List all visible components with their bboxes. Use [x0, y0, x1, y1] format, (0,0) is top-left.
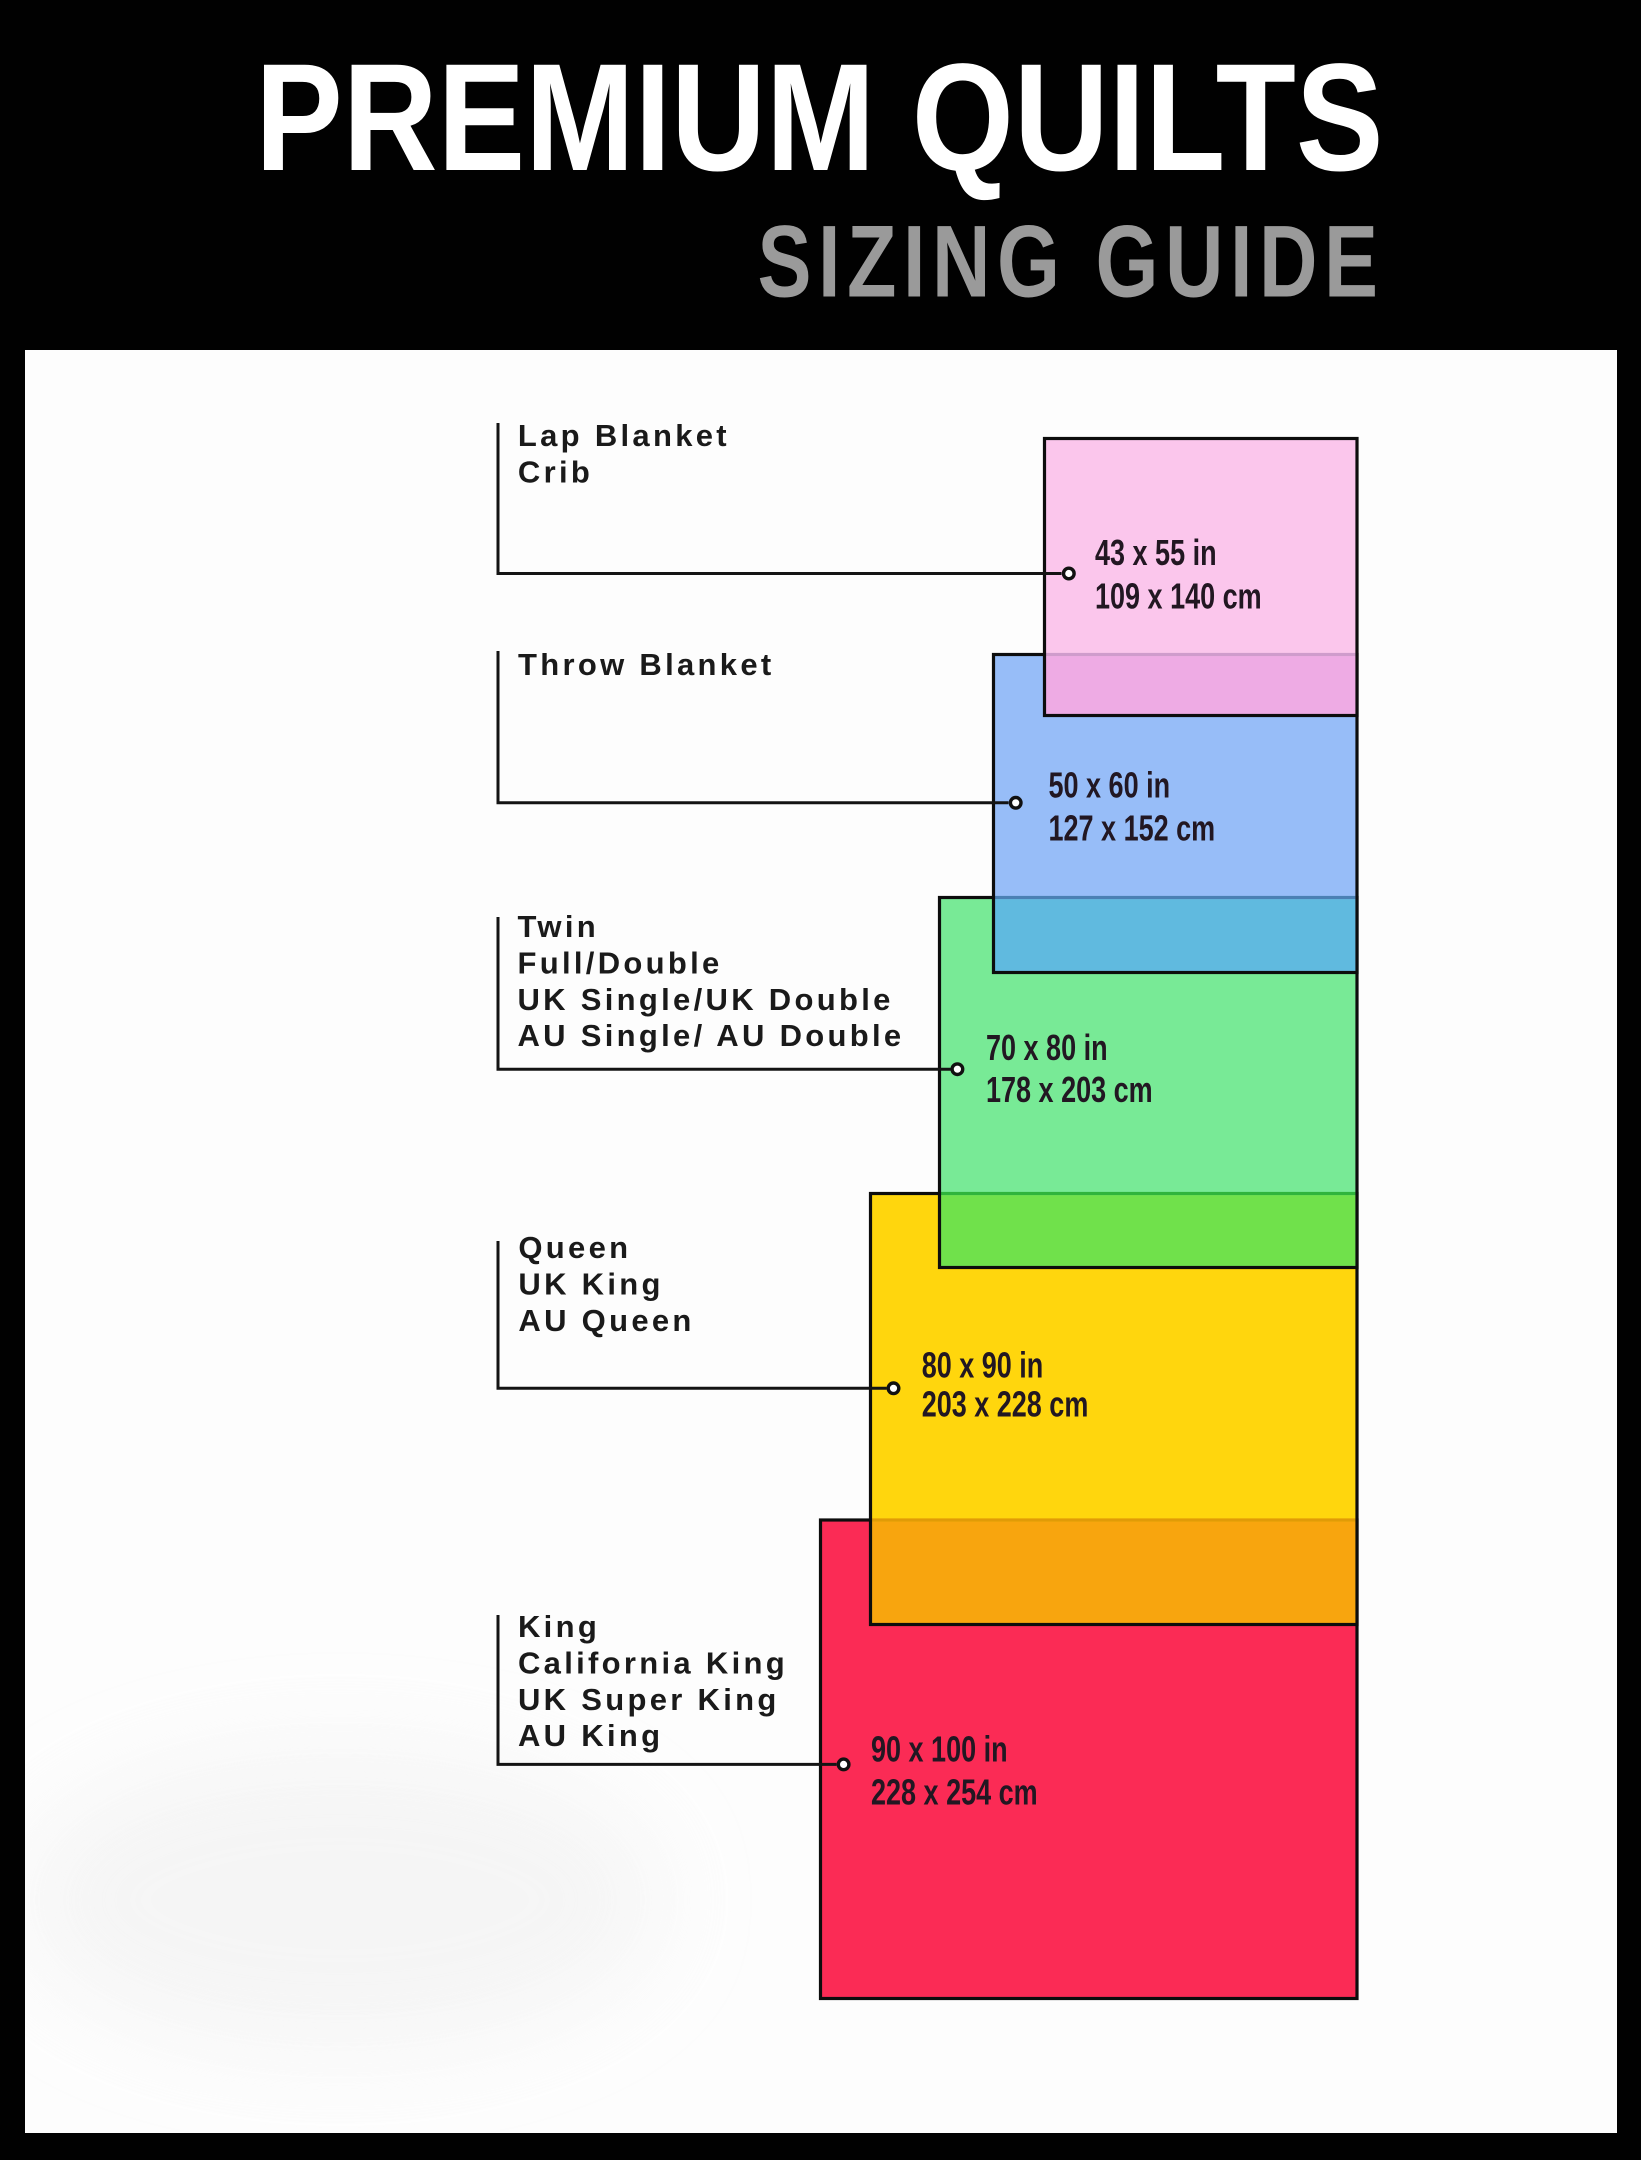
svg-text:AU King: AU King	[518, 1718, 663, 1753]
svg-text:80 x 90 in: 80 x 90 in	[922, 1345, 1044, 1386]
svg-text:SIZING GUIDE: SIZING GUIDE	[758, 206, 1385, 319]
svg-text:Crib: Crib	[518, 455, 593, 490]
svg-text:Twin: Twin	[518, 909, 600, 944]
svg-text:UK King: UK King	[518, 1266, 663, 1301]
svg-text:50 x 60 in: 50 x 60 in	[1049, 765, 1171, 806]
svg-text:228 x 254 cm: 228 x 254 cm	[871, 1771, 1038, 1812]
svg-text:PREMIUM QUILTS: PREMIUM QUILTS	[255, 33, 1383, 204]
svg-text:109 x 140 cm: 109 x 140 cm	[1095, 576, 1262, 617]
svg-text:AU Single/ AU Double: AU Single/ AU Double	[518, 1018, 905, 1053]
svg-text:UK Super King: UK Super King	[518, 1682, 780, 1717]
svg-text:127 x 152 cm: 127 x 152 cm	[1049, 807, 1216, 848]
svg-text:Throw Blanket: Throw Blanket	[518, 647, 774, 682]
svg-text:178 x 203 cm: 178 x 203 cm	[986, 1069, 1153, 1110]
svg-text:Queen: Queen	[518, 1230, 631, 1265]
svg-text:AU Queen: AU Queen	[518, 1303, 694, 1338]
svg-text:Full/Double: Full/Double	[518, 945, 723, 980]
svg-text:UK Single/UK Double: UK Single/UK Double	[518, 982, 894, 1017]
svg-text:California King: California King	[518, 1645, 788, 1680]
svg-text:203 x 228 cm: 203 x 228 cm	[922, 1384, 1089, 1425]
svg-text:Lap Blanket: Lap Blanket	[518, 418, 730, 453]
svg-text:43 x 55 in: 43 x 55 in	[1095, 532, 1217, 573]
svg-text:70 x 80 in: 70 x 80 in	[986, 1027, 1108, 1068]
svg-text:90 x 100 in: 90 x 100 in	[871, 1729, 1008, 1770]
svg-text:King: King	[518, 1609, 600, 1644]
